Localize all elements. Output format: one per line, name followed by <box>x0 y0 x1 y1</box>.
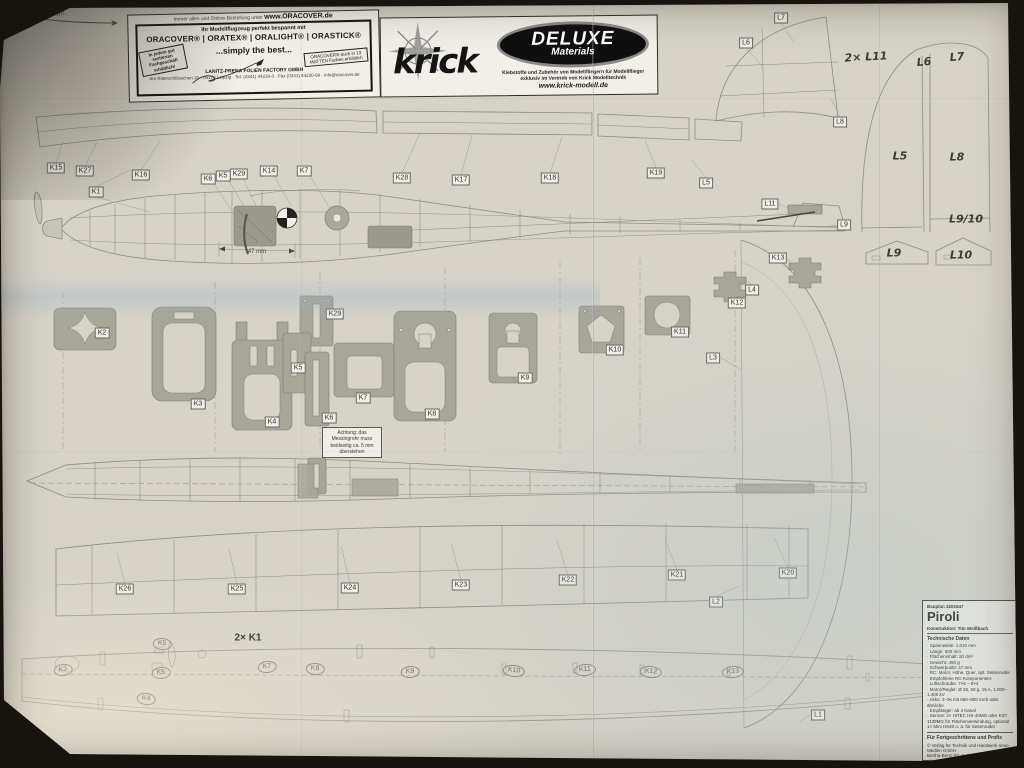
materials-word: Materials <box>500 46 646 59</box>
krick-ad: krick DELUXE Materials Klebstoffe und Zu… <box>380 15 659 98</box>
oracover-inner-box: Ihr Modellflugzeug perfekt bespannt mit … <box>135 20 372 97</box>
tech-data-item: Servos: 2× HiTEC HS-40MG oder KST 1139MG… <box>927 713 1013 729</box>
tech-data-item: RC: Motor, Höhe, Quer, opt. Seitenruder <box>927 670 1013 675</box>
skill-level: Für Fortgeschrittene und Profis <box>927 732 1013 741</box>
plan-drawing <box>0 0 1024 768</box>
plan-date: FMT 08/2022 <box>927 764 1013 768</box>
tech-data-list: Spannweite: 1.010 mmLänge: 600 mmFlächen… <box>927 643 1013 729</box>
brass-tube-note: Achtung: das Messingrohr muss beidseitig… <box>322 427 382 458</box>
krick-tagline: Klebstoffe und Zubehör von Modellflieger… <box>493 69 653 91</box>
krick-logo: krick <box>393 41 477 82</box>
photo-of-plan: { "colors": {"table_surface": "#17130e",… <box>0 0 1024 768</box>
title-block: Bauplan 3201547 Piroli Konstruktion: Tim… <box>922 600 1018 761</box>
tech-data-heading: Technische Daten <box>927 636 1013 642</box>
sheet-number: Blatt 1/2 <box>927 759 1013 764</box>
oracover-url: www.ORACOVER.de <box>264 12 333 20</box>
wing-quantity-note: 2× K1 <box>235 633 262 644</box>
plan-sheet: 100 mm Immer alles und Online-Bestellung… <box>0 0 1024 768</box>
cg-dimension-label: 47 mm <box>248 249 266 255</box>
plan-designer: Konstruktion: Tim Weißbach <box>927 626 1013 634</box>
deluxe-materials-logo: DELUXE Materials <box>497 21 649 69</box>
scale-bar <box>6 6 146 40</box>
krick-url: www.krick-modell.de <box>493 82 653 91</box>
plan-title: Piroli <box>927 609 1013 625</box>
publisher-address: Bertha-Benz-Str. 7, 76532 Baden-Baden <box>927 753 1013 758</box>
airplane-doodle-icon <box>190 56 265 88</box>
tech-data-item: Motor/Regler: Ø 28, 50 g, 15 A, 1.000–1.… <box>927 687 1013 698</box>
publisher: © Verlag für Technik und Handwerk neue M… <box>927 743 1013 754</box>
oracover-ad: Immer alles und Online-Bestellung unter … <box>127 9 381 102</box>
tech-data-item: Akku: 2–3s mit 690–800 mAh oder ähnliche <box>927 697 1013 708</box>
